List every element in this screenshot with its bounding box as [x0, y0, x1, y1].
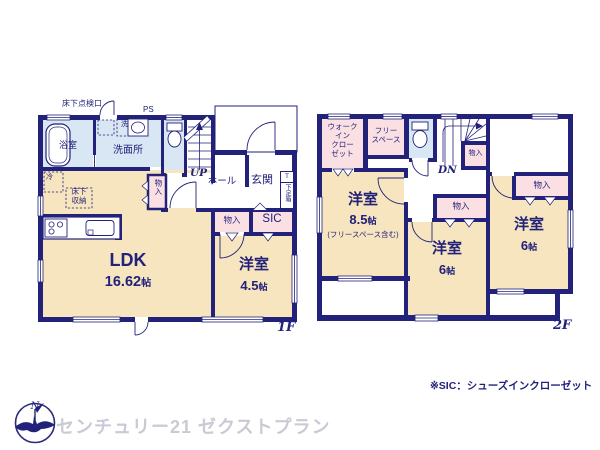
shoe-box: T 下足箱: [280, 171, 294, 209]
label-free-space: フリー スペース: [368, 127, 404, 145]
shoe-box-label: 下足箱: [284, 184, 290, 202]
label-room6right-name: 洋室: [499, 216, 559, 234]
shoe-box-t: T: [281, 172, 293, 183]
sic-note: ※SIC：シューズインクローゼット: [430, 378, 592, 393]
label-ldk-size: 16.62帖: [83, 274, 173, 291]
label-entrance: 玄関: [248, 174, 276, 187]
toilet-2f-tank: [412, 122, 428, 130]
label-room85-note: (フリースペース含む): [315, 231, 411, 240]
label-closet-mid-2f: 物入: [449, 201, 473, 211]
label-room85-name: 洋室: [333, 191, 393, 209]
label-room6mid-size: 6帖: [417, 262, 477, 277]
label-floor-hatch: 床下点検口: [62, 99, 102, 108]
vanity: [128, 119, 148, 136]
label-bedroom1f-name: 洋室: [224, 256, 284, 274]
stairs-1f: [184, 116, 211, 170]
toilet-1f-bowl: [168, 131, 181, 147]
label-floor-storage: 床下 収納: [66, 188, 92, 206]
label-floor1: 1F: [277, 320, 295, 335]
label-room6mid-name: 洋室: [417, 240, 477, 258]
label-closet-stairs-2f: 物入: [465, 150, 486, 158]
label-room6right-size: 6帖: [499, 238, 559, 253]
label-washroom: 洗面所: [108, 145, 148, 157]
label-room85-size: 8.5帖: [333, 212, 393, 227]
label-closet-right-2f: 物入: [530, 180, 554, 190]
label-floor2: 2F: [553, 318, 571, 333]
label-bath: 浴室: [53, 140, 83, 151]
label-fridge: 冷: [46, 174, 53, 182]
company-logo-icon: N: [12, 396, 58, 444]
label-bedroom1f-size: 4.5帖: [224, 278, 284, 293]
toilet-1f-tank: [167, 123, 182, 131]
floorplan-page: 床下点検口 PS 洗 浴室 洗面所 冷 床下 収納 物入 UP ホール 玄関 物…: [0, 0, 600, 450]
kitchen-sink: [86, 221, 114, 236]
label-closet-small-1f: 物入: [153, 179, 162, 206]
label-closet-hall-1f: 物入: [222, 215, 242, 225]
label-wic: ウォーク イン クロー ゼット: [322, 123, 363, 158]
company-name: センチュリー21 ゼクストプラン: [56, 413, 330, 439]
label-ldk-name: LDK: [93, 250, 163, 271]
label-hall: ホール: [206, 176, 238, 187]
label-up: UP: [190, 167, 207, 179]
toilet-2f-bowl: [413, 131, 427, 148]
room-bedroom-1f: [215, 232, 292, 317]
label-dn: DN: [438, 164, 457, 176]
label-sic: SIC: [258, 213, 286, 227]
label-washer: 洗: [121, 121, 128, 129]
label-ps: PS: [143, 105, 154, 114]
